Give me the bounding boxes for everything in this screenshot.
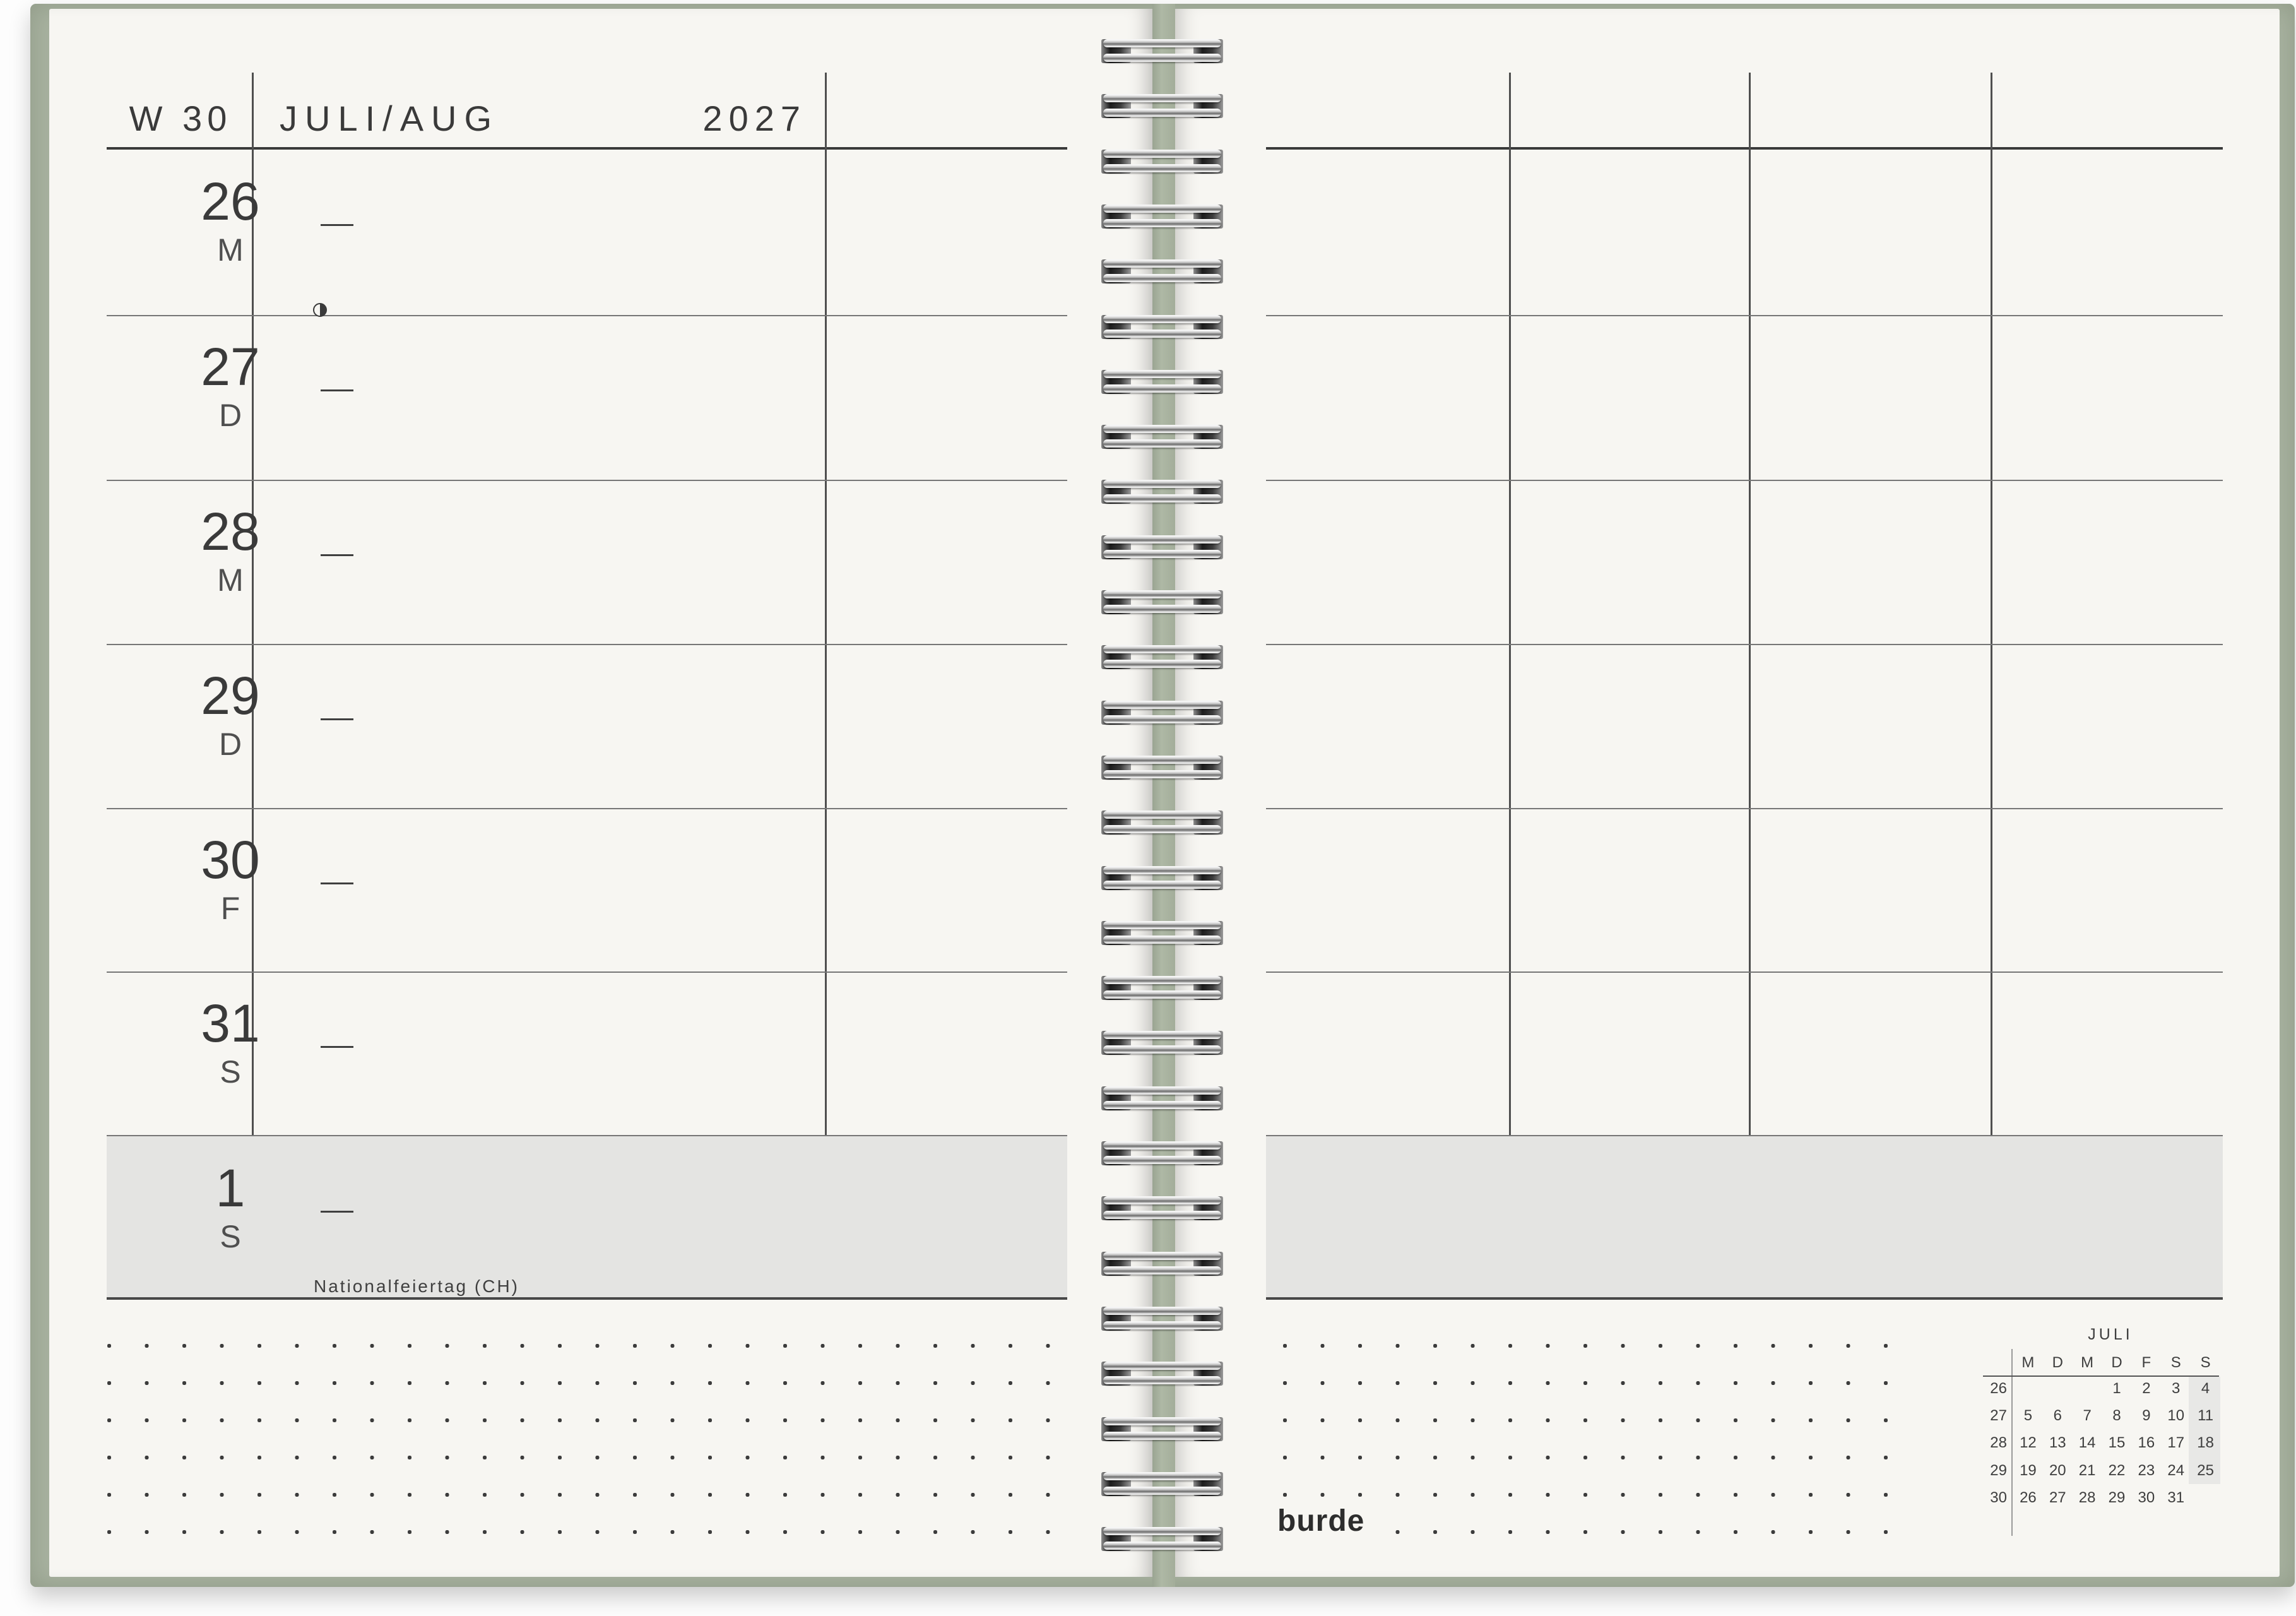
spiral-coil	[1101, 1362, 1223, 1386]
weekday-letter: S	[157, 1056, 304, 1088]
spiral-coil	[1101, 535, 1223, 559]
day-row-saturday: 31 S	[156, 971, 1116, 1134]
spiral-coil	[1101, 866, 1223, 890]
spiral-coil	[1101, 150, 1223, 174]
spiral-coil	[1101, 756, 1223, 780]
dot-grid-right	[1277, 1334, 1915, 1549]
wire-loop	[1103, 259, 1221, 268]
wire-loop	[1103, 550, 1221, 558]
mini-calendar-day-cell: 24	[2161, 1461, 2191, 1480]
mini-calendar-week-number: 27	[1982, 1406, 2007, 1425]
mini-calendar-day-header: S	[2191, 1353, 2220, 1372]
mini-calendar-week-number: 29	[1982, 1461, 2007, 1480]
spiral-coil	[1101, 425, 1223, 449]
wire-loop	[1103, 1527, 1221, 1535]
moon-last-quarter-icon	[313, 303, 327, 317]
spiral-coil	[1101, 480, 1223, 504]
mini-calendar-day-cell: 7	[2073, 1406, 2102, 1425]
spiral-coil	[1101, 1527, 1223, 1551]
month-label: JULI/AUG	[280, 101, 499, 136]
wire-loop	[1103, 1045, 1221, 1054]
weekday-letter: M	[157, 234, 304, 266]
wire-loop	[1103, 535, 1221, 544]
wire-loop	[1103, 1141, 1221, 1150]
wire-loop	[1103, 1321, 1221, 1329]
mini-calendar-day-header: S	[2161, 1353, 2191, 1372]
day-underline	[321, 1046, 353, 1048]
dot-grid-left	[101, 1334, 1068, 1549]
mini-calendar-day-header: D	[2102, 1353, 2132, 1372]
mini-calendar-day-cell: 30	[2131, 1488, 2161, 1507]
mini-calendar-day-header: D	[2043, 1353, 2073, 1372]
mini-calendar-day-cell: 15	[2102, 1434, 2132, 1453]
day-number: 27	[157, 340, 304, 393]
column-divider	[1509, 73, 1511, 1299]
mini-calendar-week-number: 26	[1982, 1379, 2007, 1398]
year-label: 2027	[636, 101, 807, 136]
wire-loop	[1103, 164, 1221, 172]
weekday-letter: M	[157, 564, 304, 596]
wire-loop	[1103, 1196, 1221, 1204]
mini-calendar-day-cell: 26	[2013, 1488, 2043, 1507]
mini-calendar-day-header: M	[2013, 1353, 2043, 1372]
mini-calendar-day-cell: 2	[2131, 1379, 2161, 1398]
wire-loop	[1103, 1472, 1221, 1480]
spiral-coil	[1101, 1141, 1223, 1165]
mini-calendar-day-header: M	[2073, 1353, 2102, 1372]
mini-calendar-day-cell: 11	[2191, 1406, 2220, 1425]
brand-logo: burde	[1277, 1502, 1367, 1540]
wire-loop	[1103, 921, 1221, 929]
day-number: 29	[157, 669, 304, 722]
spiral-coil	[1101, 701, 1223, 725]
weekday-letter: F	[157, 893, 304, 924]
mini-calendar-day-cell	[2013, 1379, 2043, 1398]
spiral-coil	[1101, 921, 1223, 945]
day-row-tuesday: 27 D	[156, 315, 1116, 478]
mini-calendar-day-cell: 25	[2191, 1461, 2220, 1480]
mini-calendar-day-headers: MDMDFSS	[1982, 1353, 2234, 1372]
mini-calendar-week-number: 30	[1982, 1488, 2007, 1507]
mini-calendar-day-header: F	[2131, 1353, 2161, 1372]
mini-calendar-day-cell: 4	[2191, 1379, 2220, 1398]
mini-calendar-day-cell: 29	[2102, 1488, 2132, 1507]
wire-loop	[1103, 480, 1221, 488]
mini-calendar-day-cell	[2191, 1488, 2220, 1507]
mini-calendar-day-cell: 14	[2073, 1434, 2102, 1453]
wire-loop	[1103, 1211, 1221, 1219]
wire-loop	[1103, 1252, 1221, 1260]
mini-calendar-day-cell: 18	[2191, 1434, 2220, 1453]
wire-loop	[1103, 825, 1221, 833]
wire-loop	[1103, 866, 1221, 874]
spiral-coil	[1101, 39, 1223, 63]
spiral-coil	[1101, 811, 1223, 835]
wire-loop	[1103, 1376, 1221, 1384]
wire-loop	[1103, 1417, 1221, 1425]
mini-calendar-day-cell: 17	[2161, 1434, 2191, 1453]
mini-calendar-week-row: 27567891011	[1982, 1406, 2234, 1425]
day-number: 26	[157, 175, 304, 228]
wire-loop	[1103, 976, 1221, 984]
wire-loop	[1103, 94, 1221, 102]
column-divider	[1749, 73, 1751, 1299]
mini-calendar-day-cell: 19	[2013, 1461, 2043, 1480]
mini-calendar-day-cell: 20	[2043, 1461, 2073, 1480]
wire-loop	[1103, 660, 1221, 668]
right-page: burde JULI MDMDFSS 261234275678910112812…	[1175, 9, 2280, 1577]
mini-calendar-day-cell	[2043, 1379, 2073, 1398]
spiral-coil	[1101, 1417, 1223, 1441]
spine-strip	[1152, 4, 1175, 1587]
wire-loop	[1103, 715, 1221, 723]
wire-loop	[1103, 384, 1221, 393]
header-rule	[1266, 147, 2223, 150]
spiral-coil	[1101, 1196, 1223, 1220]
day-row-wednesday: 28 M	[156, 480, 1116, 643]
day-underline	[321, 1211, 353, 1213]
mini-calendar-week-row: 2812131415161718	[1982, 1434, 2234, 1453]
wire-loop	[1103, 1432, 1221, 1440]
row-divider	[1266, 808, 2223, 809]
wire-loop	[1103, 39, 1221, 47]
column-divider	[1991, 73, 1992, 1299]
wire-loop	[1103, 1086, 1221, 1095]
day-row-monday: 26 M	[156, 150, 1116, 312]
wire-loop	[1103, 770, 1221, 778]
wire-loop	[1103, 936, 1221, 944]
wire-loop	[1103, 425, 1221, 433]
wire-loop	[1103, 1031, 1221, 1039]
mini-calendar-week-number: 28	[1982, 1434, 2007, 1453]
mini-calendar-day-cell: 12	[2013, 1434, 2043, 1453]
wire-loop	[1103, 150, 1221, 158]
row-divider	[1266, 644, 2223, 645]
wire-loop	[1103, 494, 1221, 502]
wire-loop	[1103, 1542, 1221, 1550]
spiral-coil	[1101, 1472, 1223, 1496]
day-underline	[321, 224, 353, 226]
wire-loop	[1103, 990, 1221, 999]
spiral-coil	[1101, 259, 1223, 283]
row-divider	[1266, 480, 2223, 481]
mini-calendar-day-cell: 5	[2013, 1406, 2043, 1425]
wire-loop	[1103, 1101, 1221, 1109]
mini-calendar-day-cell: 28	[2073, 1488, 2102, 1507]
mini-calendar-day-cell: 31	[2161, 1488, 2191, 1507]
spiral-coil	[1101, 976, 1223, 1000]
day-row-friday: 30 F	[156, 808, 1116, 971]
day-underline	[321, 718, 353, 720]
row-divider	[1266, 1135, 2223, 1136]
spiral-coil	[1101, 1086, 1223, 1110]
left-page: W 30 JULI/AUG 2027 26 M 27 D 28 M	[49, 9, 1152, 1577]
wire-loop	[1103, 645, 1221, 653]
wire-loop	[1103, 330, 1221, 338]
wire-loop	[1103, 701, 1221, 709]
wire-loop	[1103, 1266, 1221, 1274]
wire-loop	[1103, 54, 1221, 62]
weekday-letter: D	[157, 400, 304, 431]
wire-loop	[1103, 1156, 1221, 1164]
wire-loop	[1103, 881, 1221, 889]
mini-calendar-day-cell: 23	[2131, 1461, 2161, 1480]
mini-calendar-day-cell: 21	[2073, 1461, 2102, 1480]
day-row-thursday: 29 D	[156, 644, 1116, 807]
spiral-coil	[1101, 370, 1223, 394]
weekday-letter: S	[157, 1221, 304, 1252]
wire-loop	[1103, 1362, 1221, 1370]
wire-loop	[1103, 109, 1221, 117]
spiral-coil	[1101, 94, 1223, 118]
day-number: 31	[157, 997, 304, 1050]
row-divider	[1266, 971, 2223, 973]
mini-calendar: JULI MDMDFSS 261234275678910112812131415…	[1982, 1326, 2234, 1543]
day-underline	[321, 389, 353, 391]
mini-calendar-day-cell: 13	[2043, 1434, 2073, 1453]
wire-loop	[1103, 590, 1221, 598]
mini-calendar-header-rule	[1983, 1375, 2219, 1377]
spiral-coil	[1101, 205, 1223, 229]
wire-loop	[1103, 274, 1221, 282]
wire-loop	[1103, 811, 1221, 819]
day-number: 30	[157, 833, 304, 886]
wire-loop	[1103, 439, 1221, 448]
mini-calendar-week-row: 261234	[1982, 1379, 2234, 1398]
day-number: 1	[157, 1161, 304, 1215]
mini-calendar-day-cell: 16	[2131, 1434, 2161, 1453]
mini-calendar-day-cell	[2073, 1379, 2102, 1398]
grid-bottom-rule	[1266, 1297, 2223, 1300]
week-number-label: W 30	[107, 101, 254, 136]
wire-loop	[1103, 1487, 1221, 1495]
wire-loop	[1103, 205, 1221, 213]
mini-calendar-title: JULI	[2016, 1326, 2205, 1344]
spiral-coil	[1101, 590, 1223, 614]
mini-calendar-week-row: 30262728293031	[1982, 1488, 2234, 1507]
spiral-coil	[1101, 1252, 1223, 1276]
mini-calendar-day-cell: 6	[2043, 1406, 2073, 1425]
day-number: 28	[157, 505, 304, 558]
row-divider	[1266, 315, 2223, 316]
day-underline	[321, 554, 353, 556]
wire-loop	[1103, 756, 1221, 764]
spiral-coil	[1101, 1031, 1223, 1055]
mini-calendar-day-cell: 27	[2043, 1488, 2073, 1507]
spiral-coil	[1101, 1307, 1223, 1331]
mini-calendar-day-cell: 3	[2161, 1379, 2191, 1398]
day-underline	[321, 882, 353, 884]
mini-calendar-day-cell: 22	[2102, 1461, 2132, 1480]
holiday-label: Nationalfeiertag (CH)	[314, 1276, 519, 1297]
weekday-letter: D	[157, 728, 304, 760]
wire-loop	[1103, 370, 1221, 378]
spiral-coil	[1101, 645, 1223, 669]
day-row-sunday: 1 S Nationalfeiertag (CH)	[156, 1136, 1116, 1299]
planner-spread: W 30 JULI/AUG 2027 26 M 27 D 28 M	[0, 0, 2296, 1616]
mini-calendar-day-cell: 10	[2161, 1406, 2191, 1425]
wire-loop	[1103, 315, 1221, 323]
brand-logo-text: burde	[1277, 1504, 1364, 1538]
spiral-coil	[1101, 315, 1223, 339]
mini-calendar-week-row: 2919202122232425	[1982, 1461, 2234, 1480]
wire-loop	[1103, 1307, 1221, 1315]
mini-calendar-day-cell: 8	[2102, 1406, 2132, 1425]
wire-loop	[1103, 605, 1221, 613]
sunday-row-shading	[1266, 1136, 2223, 1298]
wire-loop	[1103, 219, 1221, 227]
mini-calendar-day-cell: 9	[2131, 1406, 2161, 1425]
mini-calendar-day-cell: 1	[2102, 1379, 2132, 1398]
